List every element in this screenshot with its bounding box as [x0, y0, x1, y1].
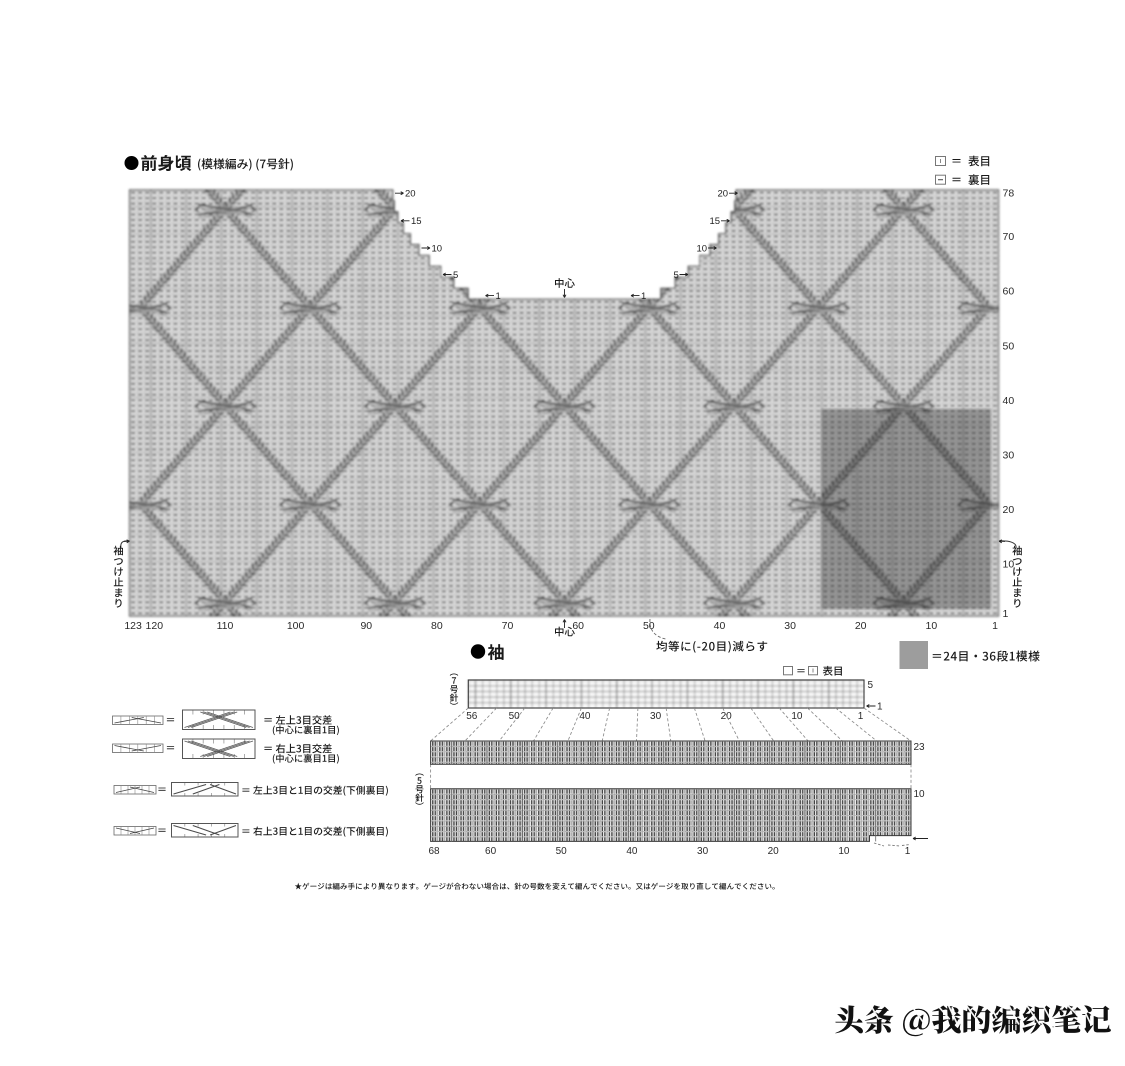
svg-text:10: 10 [791, 711, 803, 722]
svg-text:1: 1 [858, 711, 864, 722]
svg-text:40: 40 [714, 620, 726, 632]
svg-text:20: 20 [718, 189, 729, 200]
svg-text:20: 20 [768, 846, 780, 857]
svg-text:15: 15 [710, 216, 721, 227]
svg-text:20: 20 [1003, 504, 1015, 516]
svg-text:10: 10 [838, 846, 850, 857]
svg-text:60: 60 [485, 846, 497, 857]
svg-text:70: 70 [1003, 231, 1015, 243]
svg-text:1: 1 [905, 846, 911, 857]
svg-text:50: 50 [643, 620, 655, 632]
svg-text:56: 56 [466, 711, 478, 722]
svg-text:78: 78 [1003, 187, 1015, 199]
svg-text:15: 15 [411, 216, 422, 227]
svg-text:20: 20 [405, 189, 416, 200]
svg-text:23: 23 [914, 742, 926, 753]
svg-text:5: 5 [453, 270, 458, 281]
svg-text:70: 70 [502, 620, 514, 632]
svg-text:20: 20 [721, 711, 733, 722]
svg-text:5: 5 [674, 270, 679, 281]
svg-text:1: 1 [877, 702, 883, 713]
svg-text:40: 40 [626, 846, 638, 857]
svg-text:1: 1 [496, 291, 501, 302]
svg-text:123: 123 [124, 620, 142, 632]
svg-text:1: 1 [1003, 608, 1009, 620]
svg-text:5: 5 [868, 680, 874, 691]
svg-text:90: 90 [360, 620, 372, 632]
svg-text:40: 40 [579, 711, 591, 722]
svg-text:40: 40 [1003, 395, 1015, 407]
svg-text:1: 1 [992, 620, 998, 632]
svg-text:50: 50 [556, 846, 568, 857]
svg-text:110: 110 [217, 620, 234, 632]
svg-text:120: 120 [146, 620, 164, 632]
svg-text:80: 80 [431, 620, 443, 632]
svg-text:10: 10 [697, 243, 708, 254]
svg-text:30: 30 [784, 620, 796, 632]
svg-text:10: 10 [914, 789, 926, 800]
svg-text:50: 50 [1003, 340, 1015, 352]
svg-text:1: 1 [641, 291, 646, 302]
svg-text:10: 10 [926, 620, 938, 632]
svg-text:100: 100 [287, 620, 305, 632]
svg-text:20: 20 [855, 620, 867, 632]
svg-text:60: 60 [1003, 286, 1015, 298]
svg-text:68: 68 [428, 846, 440, 857]
svg-text:60: 60 [572, 620, 584, 632]
svg-text:30: 30 [650, 711, 662, 722]
svg-text:30: 30 [1003, 450, 1015, 462]
svg-text:10: 10 [1003, 559, 1015, 571]
svg-text:10: 10 [432, 243, 443, 254]
svg-text:30: 30 [697, 846, 709, 857]
